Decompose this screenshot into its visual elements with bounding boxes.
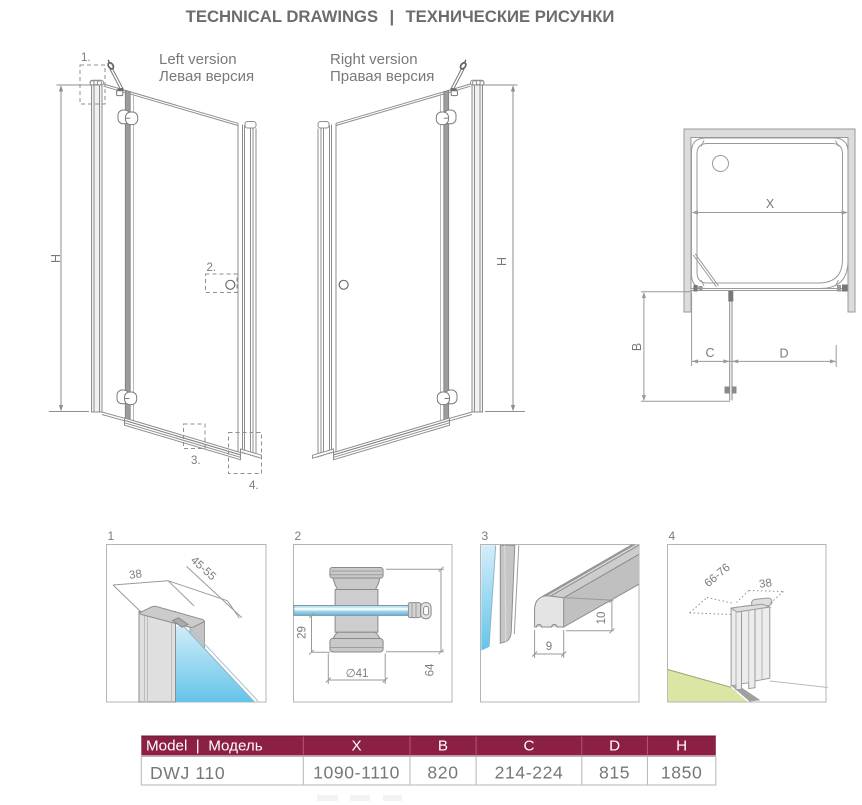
svg-text:38: 38 xyxy=(128,568,142,582)
svg-text:1: 1 xyxy=(108,529,115,543)
svg-text:10: 10 xyxy=(596,612,608,625)
svg-text:38: 38 xyxy=(758,577,772,591)
svg-text:Model | Модель: Model | Модель xyxy=(146,738,263,755)
svg-text:H: H xyxy=(495,257,509,266)
svg-text:D: D xyxy=(609,738,620,755)
svg-text:2: 2 xyxy=(295,529,302,543)
svg-text:4: 4 xyxy=(669,529,676,543)
svg-text:X: X xyxy=(766,197,775,211)
svg-text:2.: 2. xyxy=(207,262,217,274)
svg-text:3.: 3. xyxy=(191,455,201,467)
svg-text:1.: 1. xyxy=(81,52,91,64)
svg-text:B: B xyxy=(438,738,448,755)
svg-text:Правая версия: Правая версия xyxy=(330,68,434,85)
svg-text:C: C xyxy=(705,346,714,360)
svg-text:29: 29 xyxy=(297,626,309,639)
svg-text:815: 815 xyxy=(599,763,630,783)
svg-text:∅41: ∅41 xyxy=(346,668,369,680)
svg-text:X: X xyxy=(352,738,362,755)
svg-text:DWJ 110: DWJ 110 xyxy=(150,763,225,783)
svg-text:H: H xyxy=(676,738,687,755)
svg-text:820: 820 xyxy=(427,763,458,783)
svg-text:B: B xyxy=(630,343,644,351)
svg-text:9: 9 xyxy=(546,641,552,653)
svg-text:1850: 1850 xyxy=(661,763,703,783)
svg-text:4.: 4. xyxy=(249,480,259,492)
svg-text:3: 3 xyxy=(482,529,489,543)
svg-text:64: 64 xyxy=(425,663,437,676)
svg-text:TECHNICAL DRAWINGS | ТЕХНИ: TECHNICAL DRAWINGS | ТЕХНИЧЕСКИЕ РИСУНКИ xyxy=(186,7,615,26)
svg-text:1090-1110: 1090-1110 xyxy=(313,763,400,783)
svg-text:H: H xyxy=(49,254,63,263)
svg-text:Левая версия: Левая версия xyxy=(159,68,254,85)
svg-text:C: C xyxy=(524,738,535,755)
svg-text:Right version: Right version xyxy=(330,51,418,68)
svg-text:214-224: 214-224 xyxy=(495,763,564,783)
svg-text:D: D xyxy=(779,347,788,361)
svg-text:Left version: Left version xyxy=(159,51,237,68)
